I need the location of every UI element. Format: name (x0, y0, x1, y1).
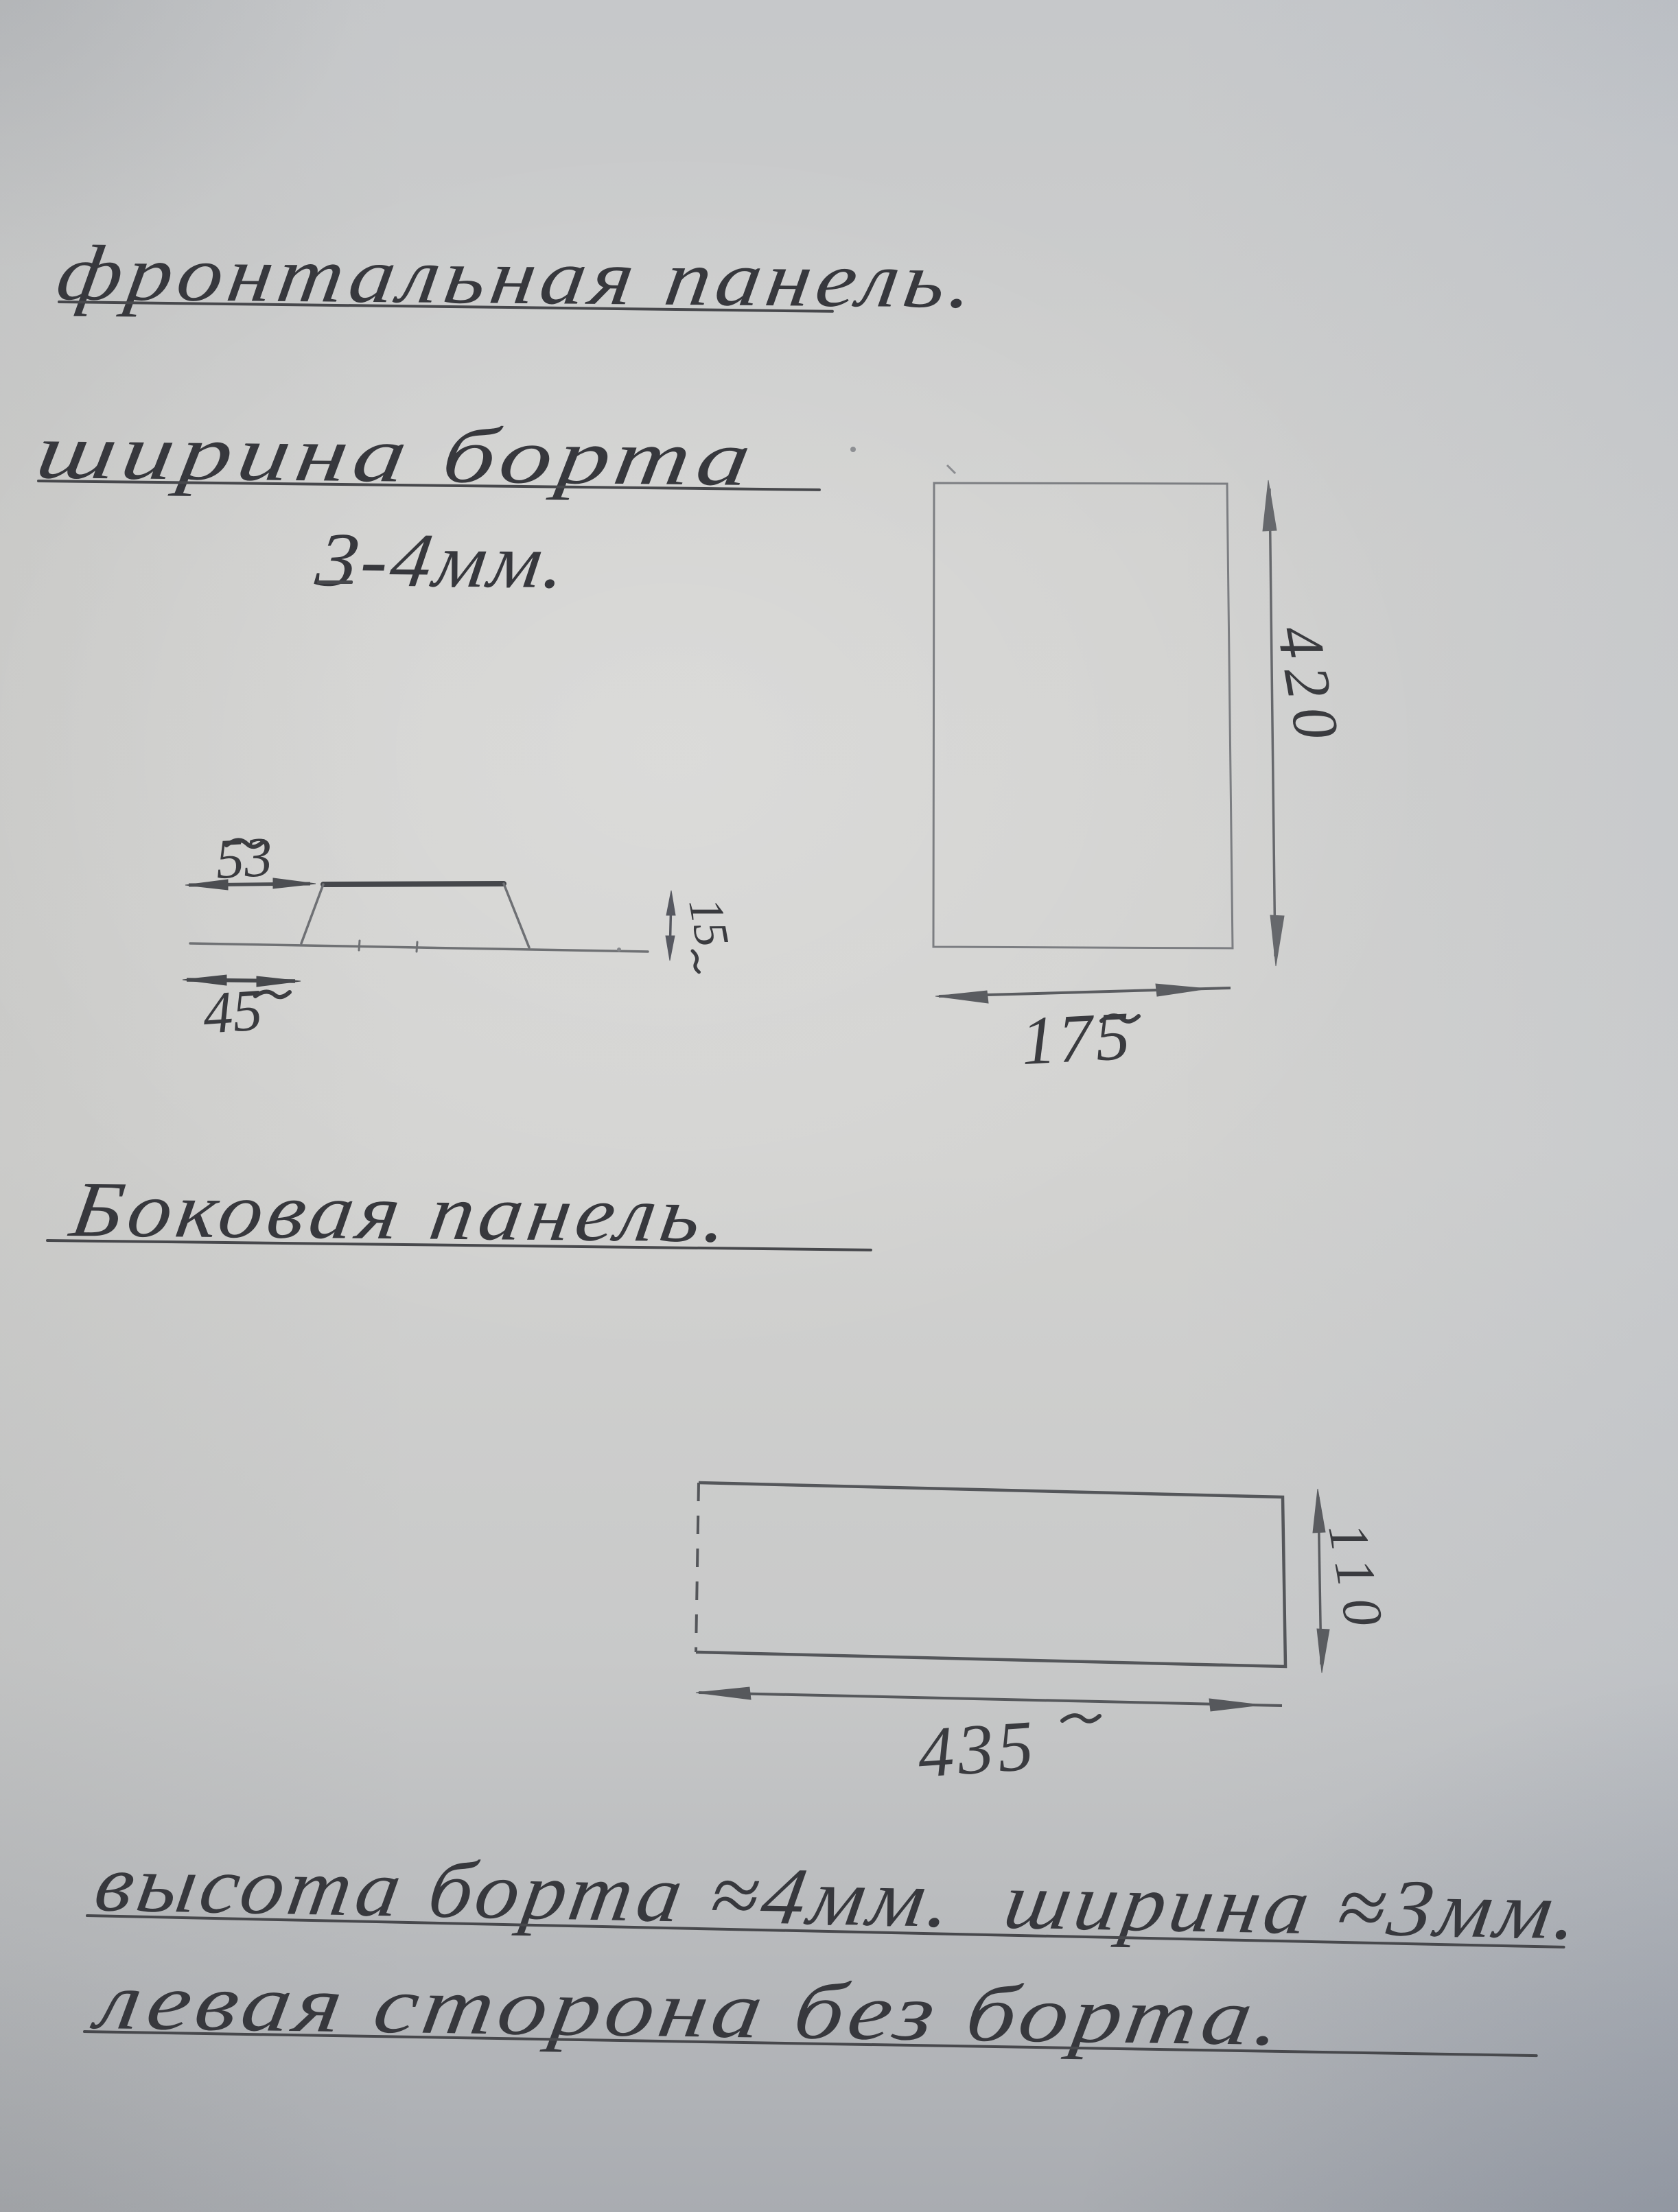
svg-text:420: 420 (1263, 620, 1354, 754)
svg-text:435: 435 (916, 1706, 1040, 1793)
svg-text:15: 15 (678, 894, 738, 950)
svg-text:175: 175 (1019, 998, 1134, 1079)
svg-text:45: 45 (201, 976, 264, 1046)
svg-text:53: 53 (214, 825, 274, 891)
svg-text:110: 110 (1316, 1519, 1396, 1643)
